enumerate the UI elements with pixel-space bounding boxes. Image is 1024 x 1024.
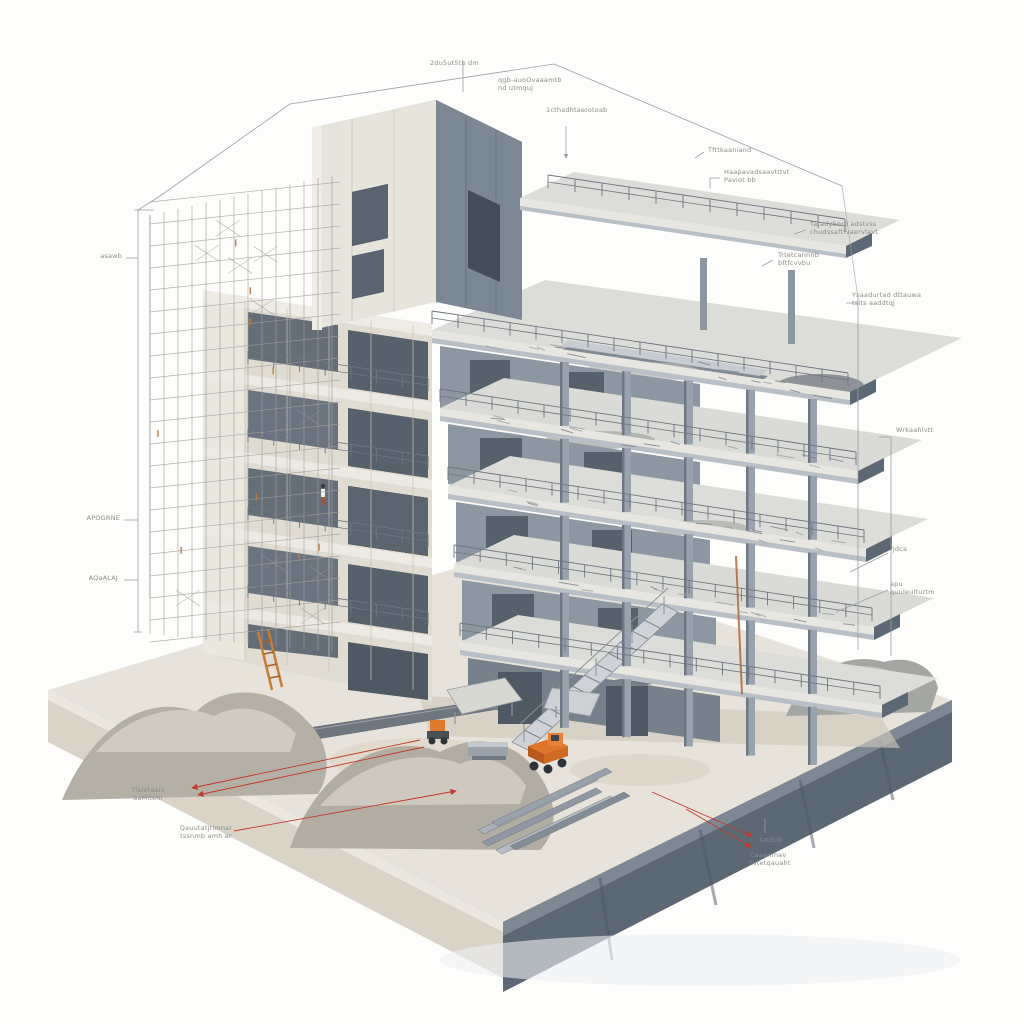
annotation-left-2: APOGRNE — [50, 514, 120, 522]
annotation-bottom-left-1: TlaietaaioaaMitem — [108, 786, 188, 803]
annotation-right-4: Trtetcannnbbftfcvvbu — [778, 251, 819, 268]
annotation-top-2: qgb-auoOvaaamtbnd utmquj — [498, 76, 562, 93]
annotation-bottom-left-2: Qauutatjtlmnartssnmb amh ar — [152, 824, 260, 841]
annotation-bottom-right-1: tatddb — [760, 836, 783, 844]
worker-figure — [321, 484, 325, 505]
annotation-top-1: 2du5ut5tb dm — [430, 59, 479, 67]
construction-illustration: 2du5ut5tb dm qgb-auoOvaaamtbnd utmquj 1c… — [0, 0, 1024, 1024]
block-pallet — [468, 742, 508, 760]
annotation-right-8: apuquuleulturtm — [890, 580, 935, 597]
annotation-right-2: HaapavadsaavtttvtPaviot bb — [724, 168, 790, 185]
core-tower — [312, 100, 522, 330]
annotation-right-7: rjdca — [890, 545, 907, 553]
annotation-bottom-right-2: Caaemnavtvtetqauaht — [750, 851, 791, 868]
annotation-right-6: Wrkaahlvtt — [896, 426, 933, 434]
annotation-left-3: AQaALAJ — [48, 574, 118, 582]
annotation-right-1: Tfttkaaniand — [708, 146, 751, 154]
annotation-left-1: asawb — [76, 252, 122, 260]
annotation-right-5: Ysaadurtad dttauwatsits aaddtqj — [852, 291, 921, 308]
annotation-right-3: Tatadybord adstvsschudssaftfvaervlavt — [810, 220, 878, 237]
annotation-top-3: 1cthadhtaerotoab — [546, 106, 607, 114]
left-wall-block — [203, 290, 432, 702]
illustration-canvas — [0, 0, 1024, 1024]
floor-decks — [432, 280, 962, 742]
